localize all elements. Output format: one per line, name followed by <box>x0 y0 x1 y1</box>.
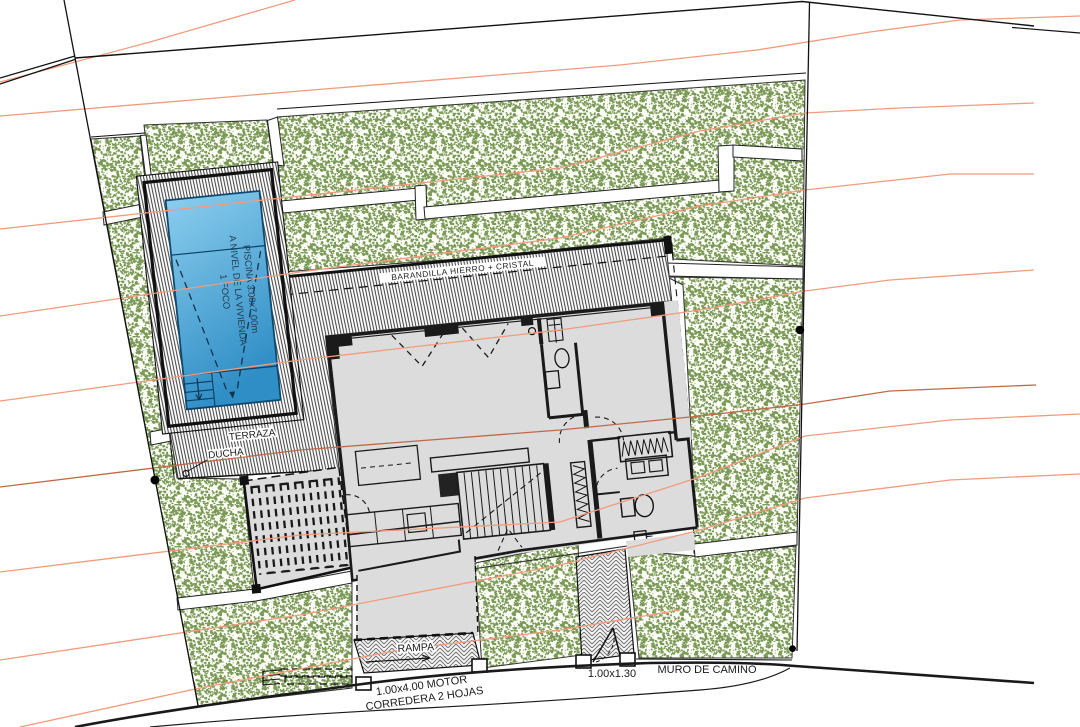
svg-text:RAMPA: RAMPA <box>397 641 434 655</box>
svg-text:1.00x1.30: 1.00x1.30 <box>588 668 636 680</box>
svg-text:MURO DE CAMINO: MURO DE CAMINO <box>658 664 757 676</box>
